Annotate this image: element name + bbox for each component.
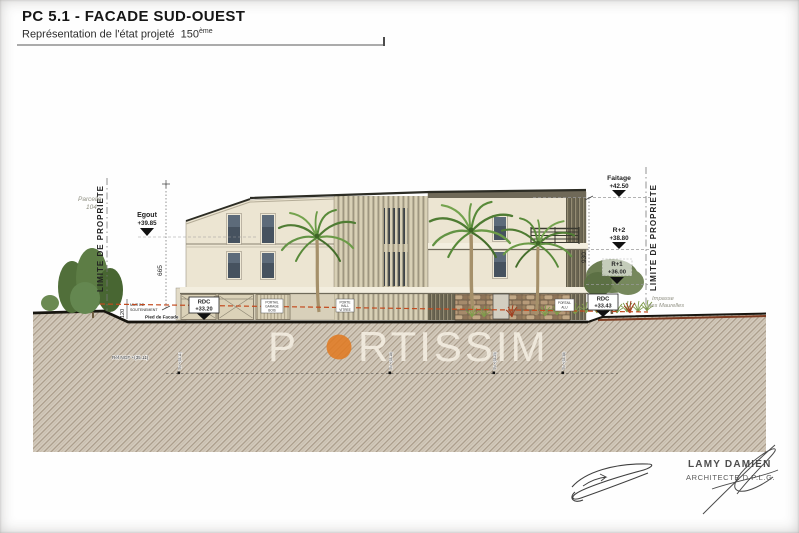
svg-text:RDC: RDC — [198, 300, 211, 306]
chip-hall-label: PORTE HALL VITREE — [336, 299, 354, 312]
svg-text:+38.80: +38.80 — [609, 235, 629, 242]
signature-block: LAMY DAMIEN ARCHITECTE D.P.L.G. — [572, 445, 778, 514]
chip-gate-label: PORTAIL ALU — [555, 299, 574, 311]
level-marker — [612, 242, 626, 249]
parcel-label-1: Parcelle — [78, 196, 102, 203]
dim-665: 665 — [157, 180, 170, 310]
ngf-ref-label: Réf NGF +(35.11) — [112, 355, 149, 360]
street-label-1: Impasse — [652, 296, 675, 302]
svg-text:VITREE: VITREE — [339, 308, 351, 312]
watermark-logo-dot — [327, 335, 352, 360]
svg-text:+36.00: +36.00 — [608, 270, 626, 276]
architect-title: ARCHITECTE D.P.L.G. — [686, 473, 775, 482]
signature-scribble — [572, 464, 652, 501]
svg-text:BOIS: BOIS — [268, 309, 276, 313]
elevation-drawing: P RTISSIM — [0, 0, 799, 533]
tn-mark: TN +(33.18) — [389, 352, 393, 370]
street-label-2: des Maurelles — [648, 303, 684, 309]
level-r2: R+2 +38.80 — [586, 227, 650, 250]
tn-mark: TN +(33.25) — [493, 352, 497, 370]
drawing-sheet: PC 5.1 - FACADE SUD-OUEST Représentation… — [0, 0, 799, 533]
tn-mark: TN +(33.11) — [178, 352, 182, 370]
retaining-wall-note: 120 MUR DE SOUTENEMENT Pied de Facade — [120, 299, 179, 320]
svg-text:+33.43: +33.43 — [594, 304, 611, 310]
svg-text:Faitage: Faitage — [607, 175, 631, 182]
facade-foot-label: Pied de Facade — [145, 315, 179, 320]
entry-door — [493, 294, 509, 319]
svg-text:+42.50: +42.50 — [609, 183, 629, 190]
watermark-text-rest: RTISSIM — [358, 323, 549, 370]
svg-text:SOUTENEMENT: SOUTENEMENT — [130, 308, 158, 312]
svg-text:+33.20: +33.20 — [195, 307, 212, 313]
dim-120-text: 120 — [120, 309, 126, 318]
dim-930-text: 930 — [581, 252, 588, 263]
svg-text:R+1: R+1 — [611, 262, 623, 268]
svg-text:RDC: RDC — [597, 297, 610, 303]
balcony-slab-lower — [180, 287, 588, 293]
svg-text:PORTAIL: PORTAIL — [558, 301, 572, 305]
property-limit-right-label: LIMITE DE PROPRIETE — [649, 184, 658, 291]
level-rdc-right: RDC +33.43 — [588, 294, 618, 317]
chip-garage-label: PORTAIL GARAGE BOIS — [261, 299, 283, 313]
svg-text:Egout: Egout — [137, 212, 157, 219]
tn-mark: TN +(33.38) — [562, 352, 566, 370]
svg-text:R+2: R+2 — [613, 227, 626, 234]
architect-stamp: LAMY DAMIEN ARCHITECTE D.P.L.G. — [686, 445, 778, 514]
watermark-text-p: P — [268, 323, 299, 370]
svg-text:ALU: ALU — [561, 306, 568, 310]
building-facade — [176, 190, 588, 320]
parcel-label-2: 104 — [86, 204, 97, 211]
windows-right-block — [493, 216, 510, 320]
dim-665-text: 665 — [157, 265, 164, 276]
level-marker — [612, 190, 626, 197]
svg-text:+39.85: +39.85 — [137, 220, 157, 227]
cypress-tree — [41, 248, 123, 318]
level-marker — [140, 228, 154, 236]
